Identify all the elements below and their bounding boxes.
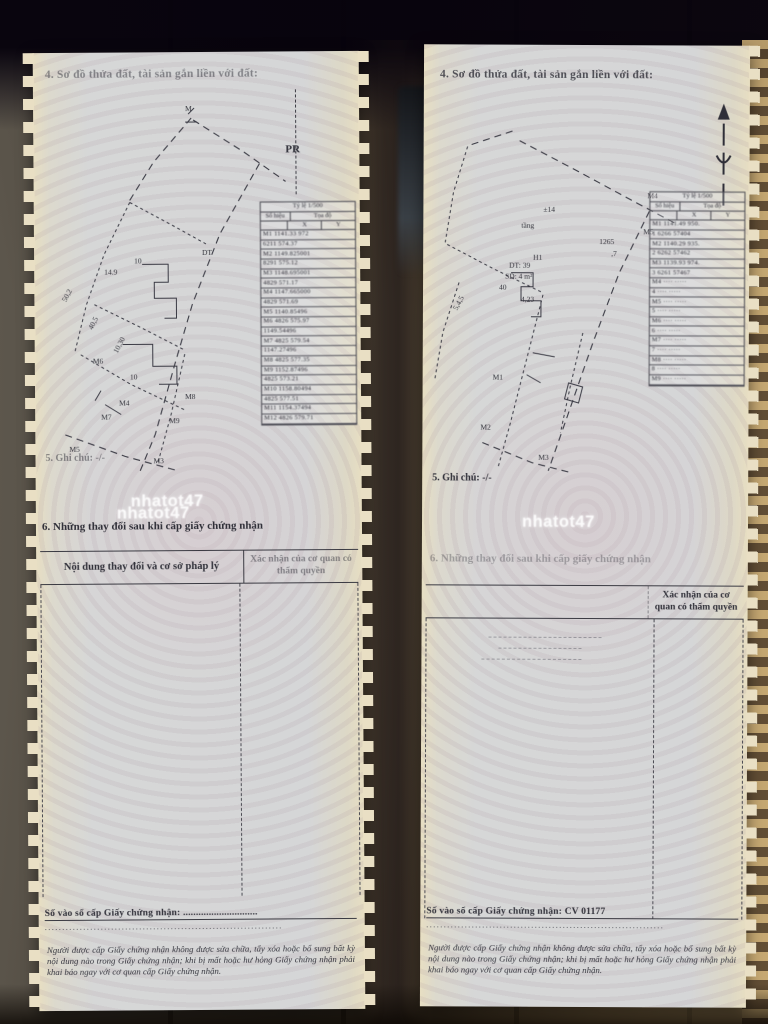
diagram-label: H1	[533, 253, 542, 262]
col-coords: Tọa độ	[290, 211, 354, 220]
section5-note: 5. Ghi chú: -/-	[45, 453, 105, 464]
coordinate-row: 2 6262 57462	[650, 249, 744, 259]
coordinate-row: M3 1139.93 974.	[650, 259, 744, 269]
certificate-page-left: 4. Sơ đồ thửa đất, tài sản gắn liền với …	[33, 51, 366, 1011]
col-y: Y	[712, 211, 745, 219]
watermark: nhatot47 nhatot47	[131, 492, 204, 524]
parcel-sketch-labels: MDT1014.950,240,510,30M610M4M7M8M9M5M3	[33, 103, 296, 475]
dotted-line: ........................................…	[45, 921, 357, 932]
certificate-page-right: 4. Sơ đồ thửa đất, tài sản gắn liền với …	[420, 44, 750, 1007]
changes-col-confirm: Xác nhận của cơ quan có thẩm quyền	[649, 586, 744, 618]
coordinate-rows: M1 1141.49 950.1 6266 57404M2 1140.29 93…	[650, 220, 745, 385]
legal-note: Người được cấp Giấy chứng nhận không đượ…	[428, 942, 736, 976]
changes-col-content: Nội dung thay đổi và cơ sở pháp lý	[40, 551, 244, 584]
changes-col-confirm: Xác nhận của cơ quan có thẩm quyền	[244, 550, 359, 583]
coordinate-row: M6 ···· ·····	[650, 317, 744, 327]
col-point-id: Số hiệu	[261, 212, 291, 221]
diagram-label: 40	[499, 283, 507, 292]
watermark: nhatot47	[522, 513, 595, 532]
coordinate-table: Tỷ lệ 1/500 Số hiệu Tọa độ X Y M1 1141.4…	[649, 191, 746, 386]
section6-heading: 6. Những thay đổi sau khi cấp giấy chứng…	[42, 519, 292, 533]
serial-number-row: Số vào sổ cấp Giấy chứng nhận: .........…	[45, 907, 357, 932]
col-x: X	[678, 211, 712, 219]
changes-col-content	[426, 585, 649, 618]
diagram-label: SD: 4 m²	[505, 272, 532, 281]
coordinate-row: M4 ···· ·····	[650, 278, 744, 288]
coordinate-row: M9 ···· ·····	[650, 375, 744, 385]
diagram-label: M3	[538, 453, 548, 462]
section5-note: 5. Ghi chú: -/-	[432, 472, 492, 483]
coordinate-row: 6 ···· ·····	[650, 327, 744, 337]
diagram-label: DT: 39	[509, 261, 530, 270]
coordinate-row: M1 1141.49 950.	[650, 220, 744, 230]
coordinate-row: 8 ···· ·····	[650, 365, 744, 375]
diagram-label: M4	[119, 398, 129, 407]
coordinate-table: Tỷ lệ 1/500 Số hiệu Tọa độ X Y M1 1141.3…	[260, 201, 358, 425]
changes-table: Nội dung thay đổi và cơ sở pháp lý Xác n…	[40, 549, 360, 897]
col-x: X	[288, 221, 322, 230]
section6-heading: 6. Những thay đổi sau khi cấp giấy chứng…	[430, 552, 680, 566]
diagram-label: ±14	[543, 205, 555, 214]
dotted-line: ........................................…	[426, 920, 738, 930]
diagram-label: 40,5	[86, 315, 100, 331]
signature-scribbles	[425, 618, 654, 919]
diagram-label: 1265	[599, 237, 614, 246]
diagram-label: M7	[101, 413, 111, 422]
diagram-label: M3	[153, 456, 163, 465]
coordinate-row: M8 ···· ·····	[650, 356, 744, 366]
road-boundary-line	[295, 89, 297, 194]
coordinate-row: 7 ···· ·····	[650, 346, 744, 356]
coordinate-row: M5 ···· ·····	[650, 298, 744, 308]
changes-table: Xác nhận của cơ quan có thẩm quyền	[424, 584, 743, 919]
coordinate-rows: M1 1141.33 9726211 574.37M2 1149.8250018…	[261, 230, 356, 424]
coordinate-row: 1 6266 57404	[650, 230, 744, 240]
coordinate-row: M7 ···· ·····	[650, 336, 744, 346]
coordinate-row: 3 6261 57467	[650, 269, 744, 279]
diagram-label: M	[185, 104, 192, 113]
diagram-label: M1	[493, 373, 503, 382]
parcel-sketch-labels: ±14tầngM4M5H11265,7DT: 39SD: 4 m²404,235…	[422, 122, 684, 473]
serial-number-text: Số vào sổ cấp Giấy chứng nhận: CV 01177	[426, 906, 738, 919]
diagram-label: M9	[169, 416, 179, 425]
diagram-label: 14.9	[104, 268, 117, 277]
coordinate-row: 4 ···· ·····	[650, 288, 744, 298]
diagram-label: 10	[134, 256, 142, 265]
diagram-label: M2	[480, 423, 490, 432]
col-point-id: Số hiệu	[650, 202, 680, 210]
diagram-label: 10,30	[111, 335, 127, 354]
diagram-label: 50,2	[60, 288, 74, 304]
diagram-label: 10	[130, 372, 138, 381]
legal-note: Người được cấp Giấy chứng nhận không đượ…	[47, 943, 355, 978]
diagram-label: DT	[202, 248, 212, 257]
diagram-label: ,7	[611, 249, 617, 258]
diagram-label: M6	[93, 357, 103, 366]
serial-number-row: Số vào sổ cấp Giấy chứng nhận: CV 01177 …	[426, 906, 738, 930]
coordinate-row: M2 1140.29 935.	[650, 240, 744, 250]
col-coords: Tọa độ	[680, 202, 744, 211]
diagram-label: tầng	[521, 221, 534, 230]
col-y: Y	[322, 221, 355, 230]
serial-number-text: Số vào sổ cấp Giấy chứng nhận: .........…	[45, 907, 357, 921]
coordinate-table-title: Tỷ lệ 1/500	[650, 192, 744, 202]
section4-heading: 4. Sơ đồ thửa đất, tài sản gắn liền với …	[45, 68, 260, 83]
coordinate-row: M12 4826 579.71	[262, 414, 356, 424]
diagram-label: 5,4,5	[451, 294, 466, 311]
diagram-label: M8	[185, 392, 195, 401]
coordinate-row: 5 ···· ·····	[650, 307, 744, 317]
section4-heading: 4. Sơ đồ thửa đất, tài sản gắn liền với …	[440, 68, 655, 82]
diagram-label: 4,23	[521, 295, 534, 304]
